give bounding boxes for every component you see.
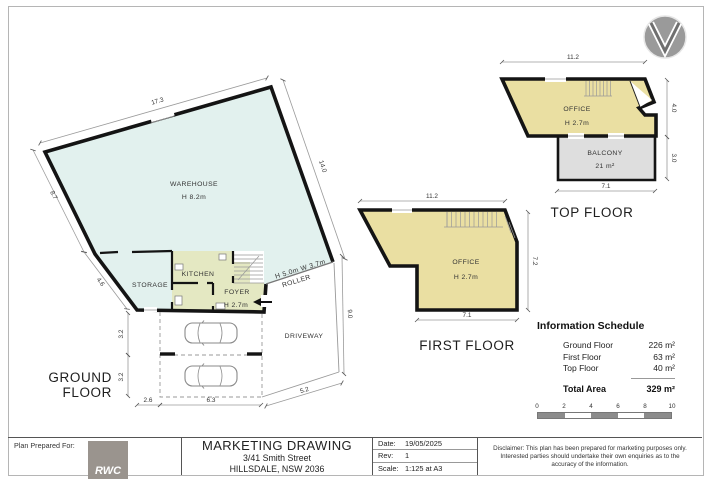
scale-bar: 0 2 4 6 8 10 — [537, 403, 672, 419]
schedule-row-ground: Ground Floor 226 m² — [537, 340, 675, 352]
row-label: Ground Floor — [563, 340, 613, 352]
scale-tick: 8 — [643, 403, 647, 410]
address-line1: 3/41 Smith Street — [243, 453, 311, 464]
row-value: 226 m² — [649, 340, 675, 352]
rwc-logo: RWC — [88, 441, 128, 479]
prepared-for-label: Plan Prepared For: — [14, 441, 75, 450]
total-label: Total Area — [563, 384, 606, 394]
title-block-meta-cell: Date: 19/05/2025 Rev: 1 Scale: 1:125 at … — [373, 438, 478, 475]
date-row: Date: 19/05/2025 — [373, 438, 477, 450]
title-block: Plan Prepared For: RWC MARKETING DRAWING… — [8, 437, 702, 475]
scale-value: 1:125 at A3 — [405, 464, 442, 473]
scale-tick: 0 — [535, 403, 539, 410]
scale-bar-segments — [537, 412, 672, 419]
marketing-drawing-page: WAREHOUSE H 8.2m STORAGE KITCHEN FOYER H… — [0, 0, 712, 480]
rev-value: 1 — [405, 451, 409, 460]
rev-row: Rev: 1 — [373, 450, 477, 462]
schedule-row-first: First Floor 63 m² — [537, 352, 675, 364]
scale-row: Scale: 1:125 at A3 — [373, 463, 477, 475]
information-schedule-title: Information Schedule — [537, 320, 675, 332]
row-label: First Floor — [563, 352, 601, 364]
row-value: 40 m² — [653, 363, 675, 375]
schedule-divider — [631, 378, 675, 379]
information-schedule: Information Schedule Ground Floor 226 m²… — [537, 320, 675, 394]
title-block-heading-cell: MARKETING DRAWING 3/41 Smith Street HILL… — [182, 438, 373, 475]
date-value: 19/05/2025 — [405, 439, 442, 448]
scale-tick: 2 — [562, 403, 566, 410]
scale-label: Scale: — [378, 464, 405, 473]
date-label: Date: — [378, 439, 405, 448]
scale-tick: 4 — [589, 403, 593, 410]
drawing-heading: MARKETING DRAWING — [202, 439, 352, 453]
row-value: 63 m² — [653, 352, 675, 364]
row-label: Top Floor — [563, 363, 598, 375]
rev-label: Rev: — [378, 451, 405, 460]
schedule-row-top: Top Floor 40 m² — [537, 363, 675, 375]
disclaimer-text: Disclaimer: This plan has been prepared … — [491, 445, 688, 469]
scale-tick: 10 — [668, 403, 675, 410]
schedule-total-row: Total Area 329 m² — [537, 384, 675, 394]
total-value: 329 m² — [646, 384, 675, 394]
scale-tick: 6 — [616, 403, 620, 410]
title-block-disclaimer-cell: Disclaimer: This plan has been prepared … — [478, 438, 702, 475]
scale-bar-ticks: 0 2 4 6 8 10 — [537, 403, 672, 411]
address-line2: HILLSDALE, NSW 2036 — [230, 464, 325, 475]
title-block-prepared-cell: Plan Prepared For: RWC — [8, 438, 182, 475]
